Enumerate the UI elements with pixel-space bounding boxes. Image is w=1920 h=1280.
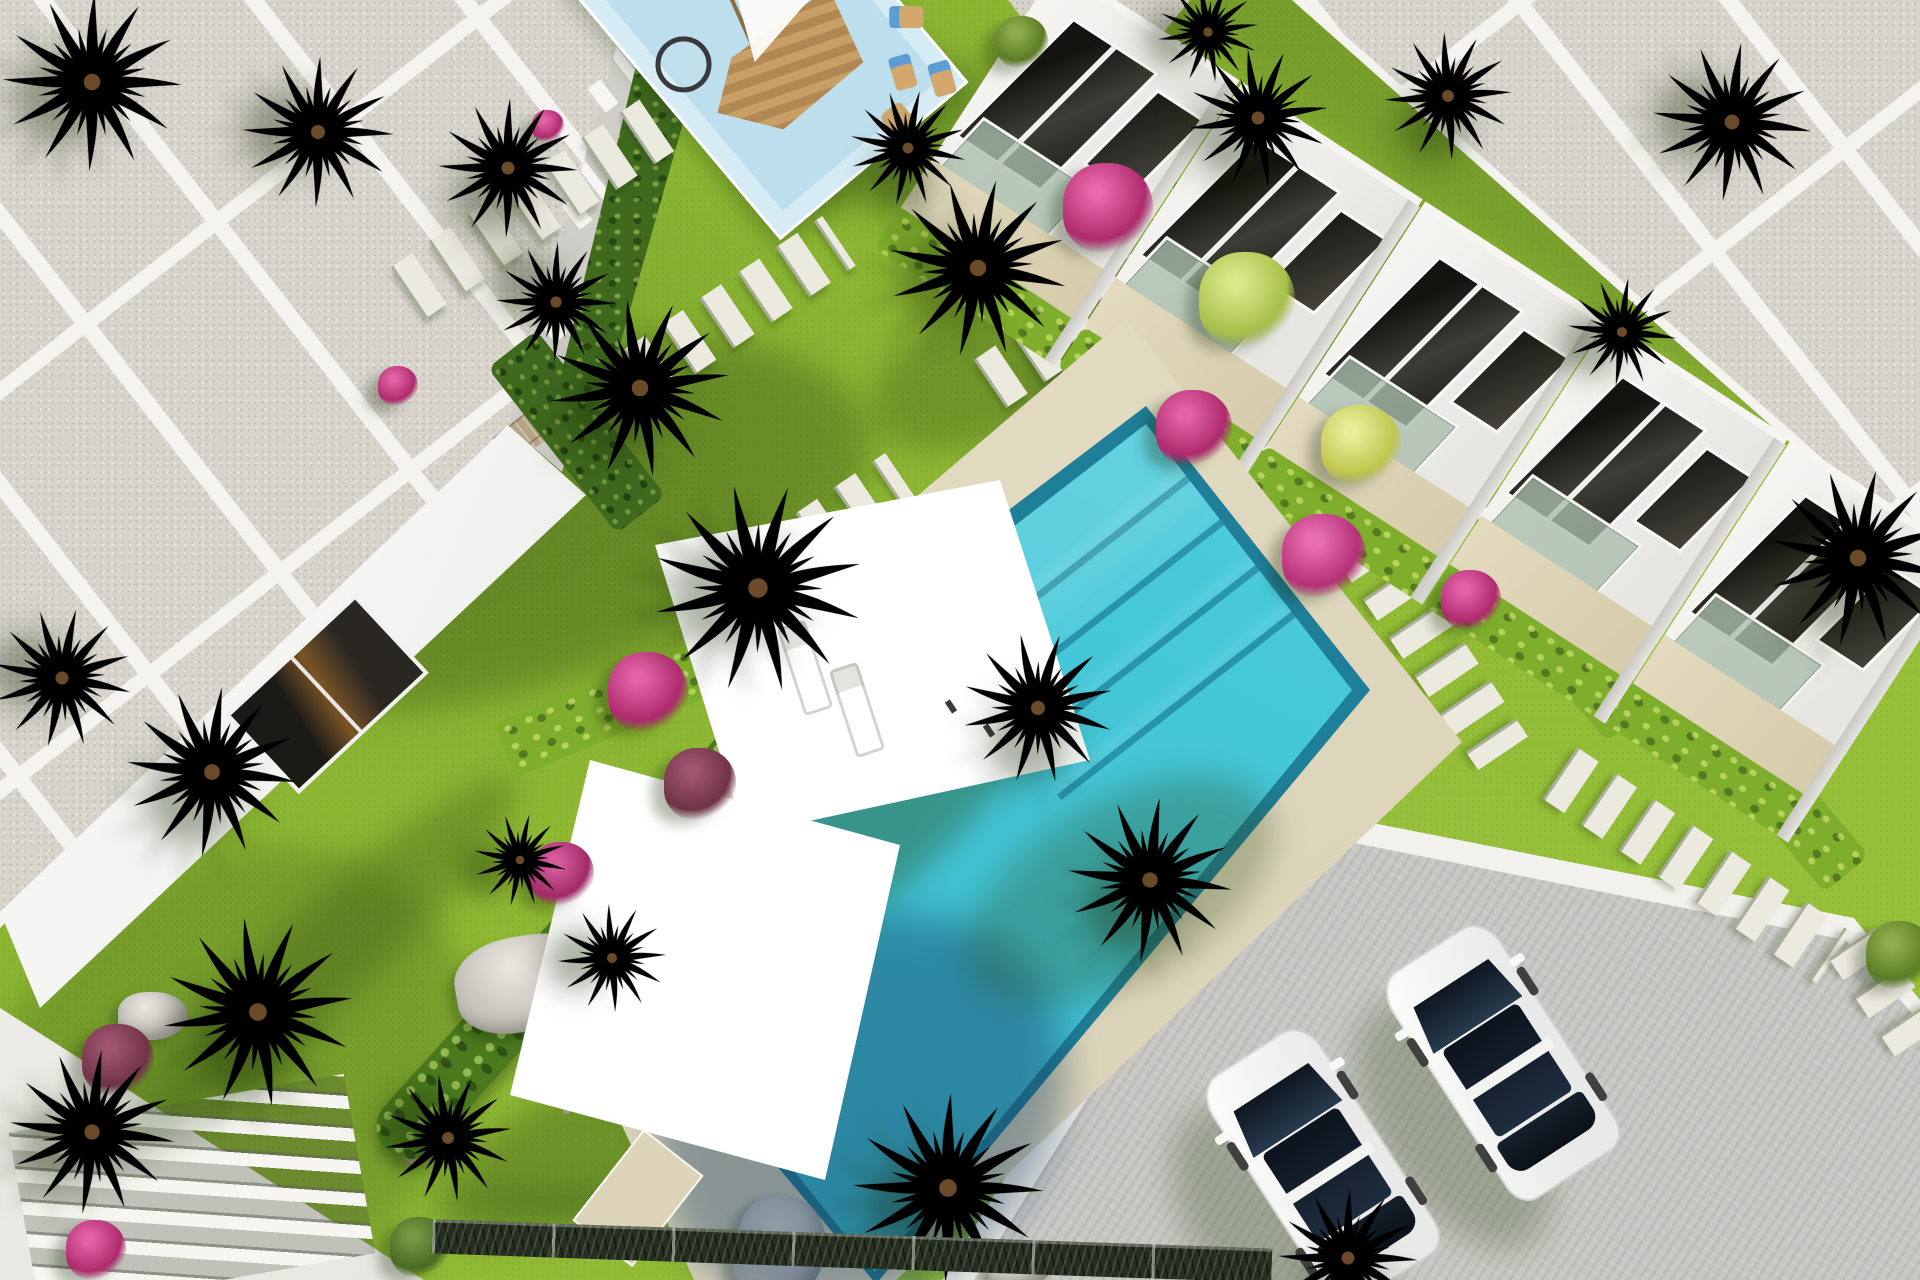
render-detail — [0, 0, 194, 184]
palm-tree — [0, 0, 199, 189]
render-detail — [1756, 456, 1920, 661]
climbing-net — [644, 25, 723, 104]
flowering-bush — [1866, 921, 1920, 989]
deck-chair — [889, 6, 923, 28]
aerial-residential-render — [0, 0, 1920, 1280]
